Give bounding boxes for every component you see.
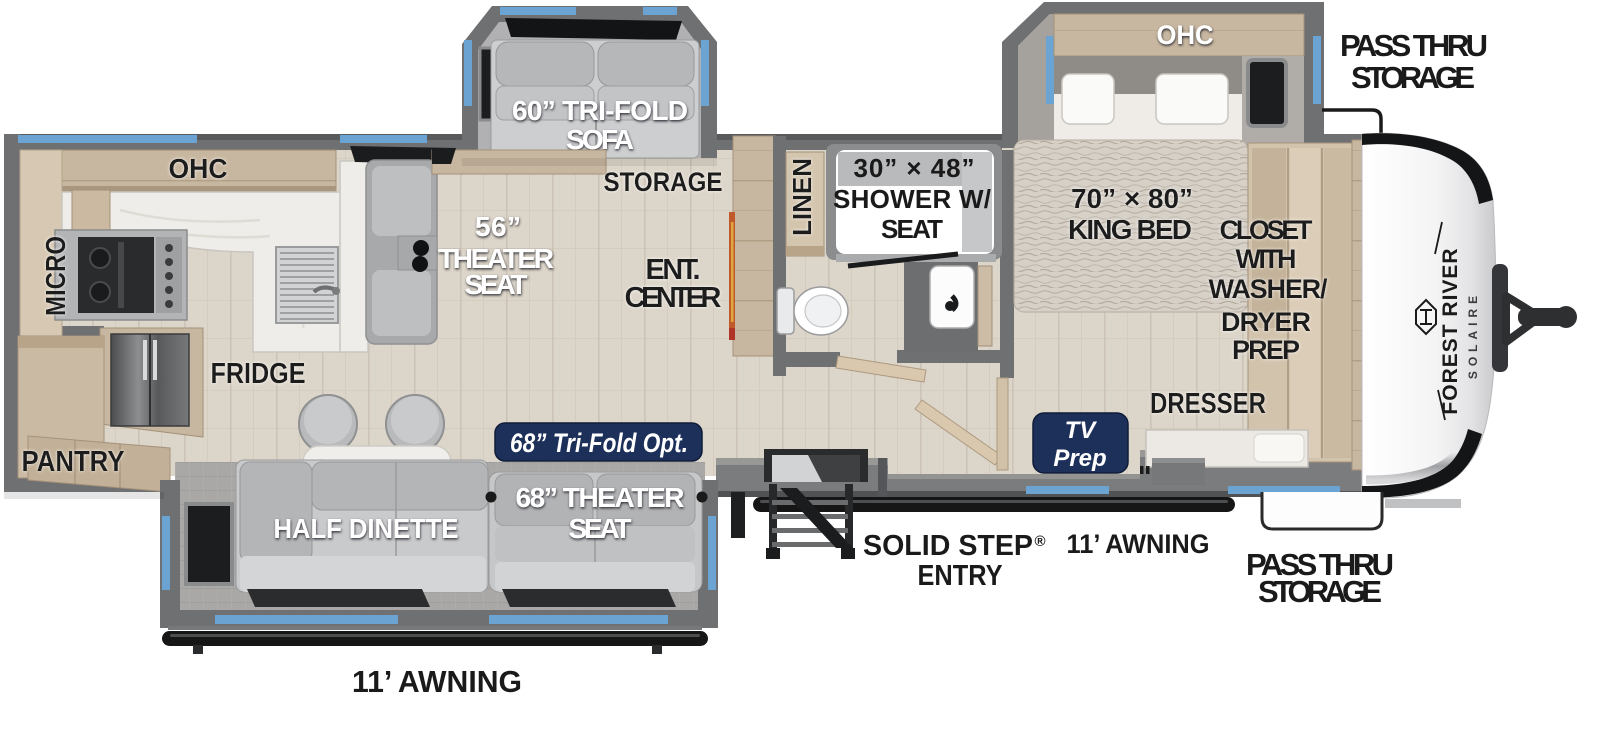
svg-text:FRIDGE: FRIDGE [211,358,306,390]
svg-text:CLOSET: CLOSET [1220,215,1314,245]
svg-text:30” × 48”: 30” × 48” [854,153,975,183]
svg-text:PASS THRU: PASS THRU [1340,28,1488,63]
svg-text:SOLAIRE: SOLAIRE [1466,291,1480,379]
svg-text:WASHER/: WASHER/ [1209,274,1328,304]
svg-text:OHC: OHC [1157,20,1214,50]
svg-text:OHC: OHC [169,153,228,184]
svg-text:60” TRI-FOLD: 60” TRI-FOLD [512,95,688,126]
svg-text:STORAGE: STORAGE [1258,574,1382,609]
svg-text:56”: 56” [475,211,521,242]
svg-text:®: ® [1034,533,1045,550]
svg-text:DRESSER: DRESSER [1150,388,1266,420]
svg-text:11’ AWNING: 11’ AWNING [1067,529,1210,559]
svg-text:PREP: PREP [1232,335,1300,365]
svg-text:FOREST RIVER: FOREST RIVER [1439,247,1462,414]
svg-text:SHOWER W/: SHOWER W/ [833,184,991,214]
svg-text:SEAT: SEAT [881,214,943,244]
svg-text:68” THEATER: 68” THEATER [516,482,685,513]
svg-text:SOLID STEP: SOLID STEP [863,530,1033,562]
svg-text:SEAT: SEAT [569,513,632,544]
svg-text:PANTRY: PANTRY [22,446,125,478]
svg-text:LINEN: LINEN [787,158,817,236]
svg-text:STORAGE: STORAGE [604,167,723,197]
svg-text:68” Tri-Fold Opt.: 68” Tri-Fold Opt. [510,428,688,458]
svg-text:70” × 80”: 70” × 80” [1071,183,1193,214]
svg-text:Prep: Prep [1053,445,1106,472]
svg-text:WITH: WITH [1236,244,1297,274]
svg-text:CENTER: CENTER [625,282,722,314]
svg-text:DRYER: DRYER [1221,307,1311,337]
svg-text:SEAT: SEAT [465,269,528,300]
svg-text:KING BED: KING BED [1068,214,1192,245]
svg-text:TV: TV [1065,417,1098,444]
svg-text:11’ AWNING: 11’ AWNING [352,664,522,699]
svg-text:ENTRY: ENTRY [918,560,1003,592]
svg-text:HALF DINETTE: HALF DINETTE [274,513,459,544]
svg-text:STORAGE: STORAGE [1351,60,1475,95]
svg-text:MICRO: MICRO [40,236,71,316]
